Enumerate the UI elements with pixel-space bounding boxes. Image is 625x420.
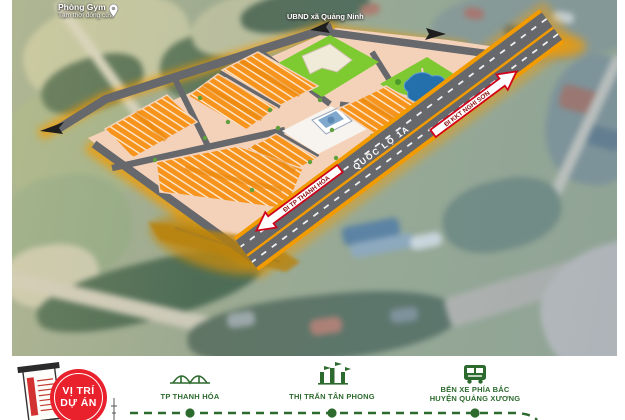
masterplan-overlay: QUỐC LỘ 1A ĐI TP THANH HÓA ĐI KKT NGHI S…: [12, 0, 617, 356]
bridge-icon: [170, 376, 210, 383]
legend-item-ben-xe: BẾN XE PHÍA BẮC HUYỆN QUẢNG XƯƠNG: [400, 385, 550, 403]
route-dot-thanh-hoa: [185, 408, 194, 417]
gate-icon: [318, 362, 351, 385]
route-dot-ben-xe: [470, 408, 479, 417]
map-pin-icon: [108, 3, 119, 18]
legend-item-tan-phong: THỊ TRẤN TÂN PHONG: [257, 392, 407, 401]
project-location-badge: VỊ TRÍ DỰ ÁN: [50, 369, 107, 420]
legend-strip: VỊ TRÍ DỰ ÁN: [0, 356, 625, 420]
legend-item-thanh-hoa: TP THANH HÓA: [115, 392, 265, 401]
poi-label-gym: Phòng Gym Tạm thời đóng cửa: [58, 2, 113, 19]
route-dot-tan-phong: [327, 408, 336, 417]
satellite-map: QUỐC LỘ 1A ĐI TP THANH HÓA ĐI KKT NGHI S…: [12, 0, 617, 356]
location-map-poster: QUỐC LỘ 1A ĐI TP THANH HÓA ĐI KKT NGHI S…: [0, 0, 625, 420]
poi-label-ubnd: UBND xã Quảng Ninh: [287, 12, 364, 21]
bus-icon: [464, 365, 486, 384]
